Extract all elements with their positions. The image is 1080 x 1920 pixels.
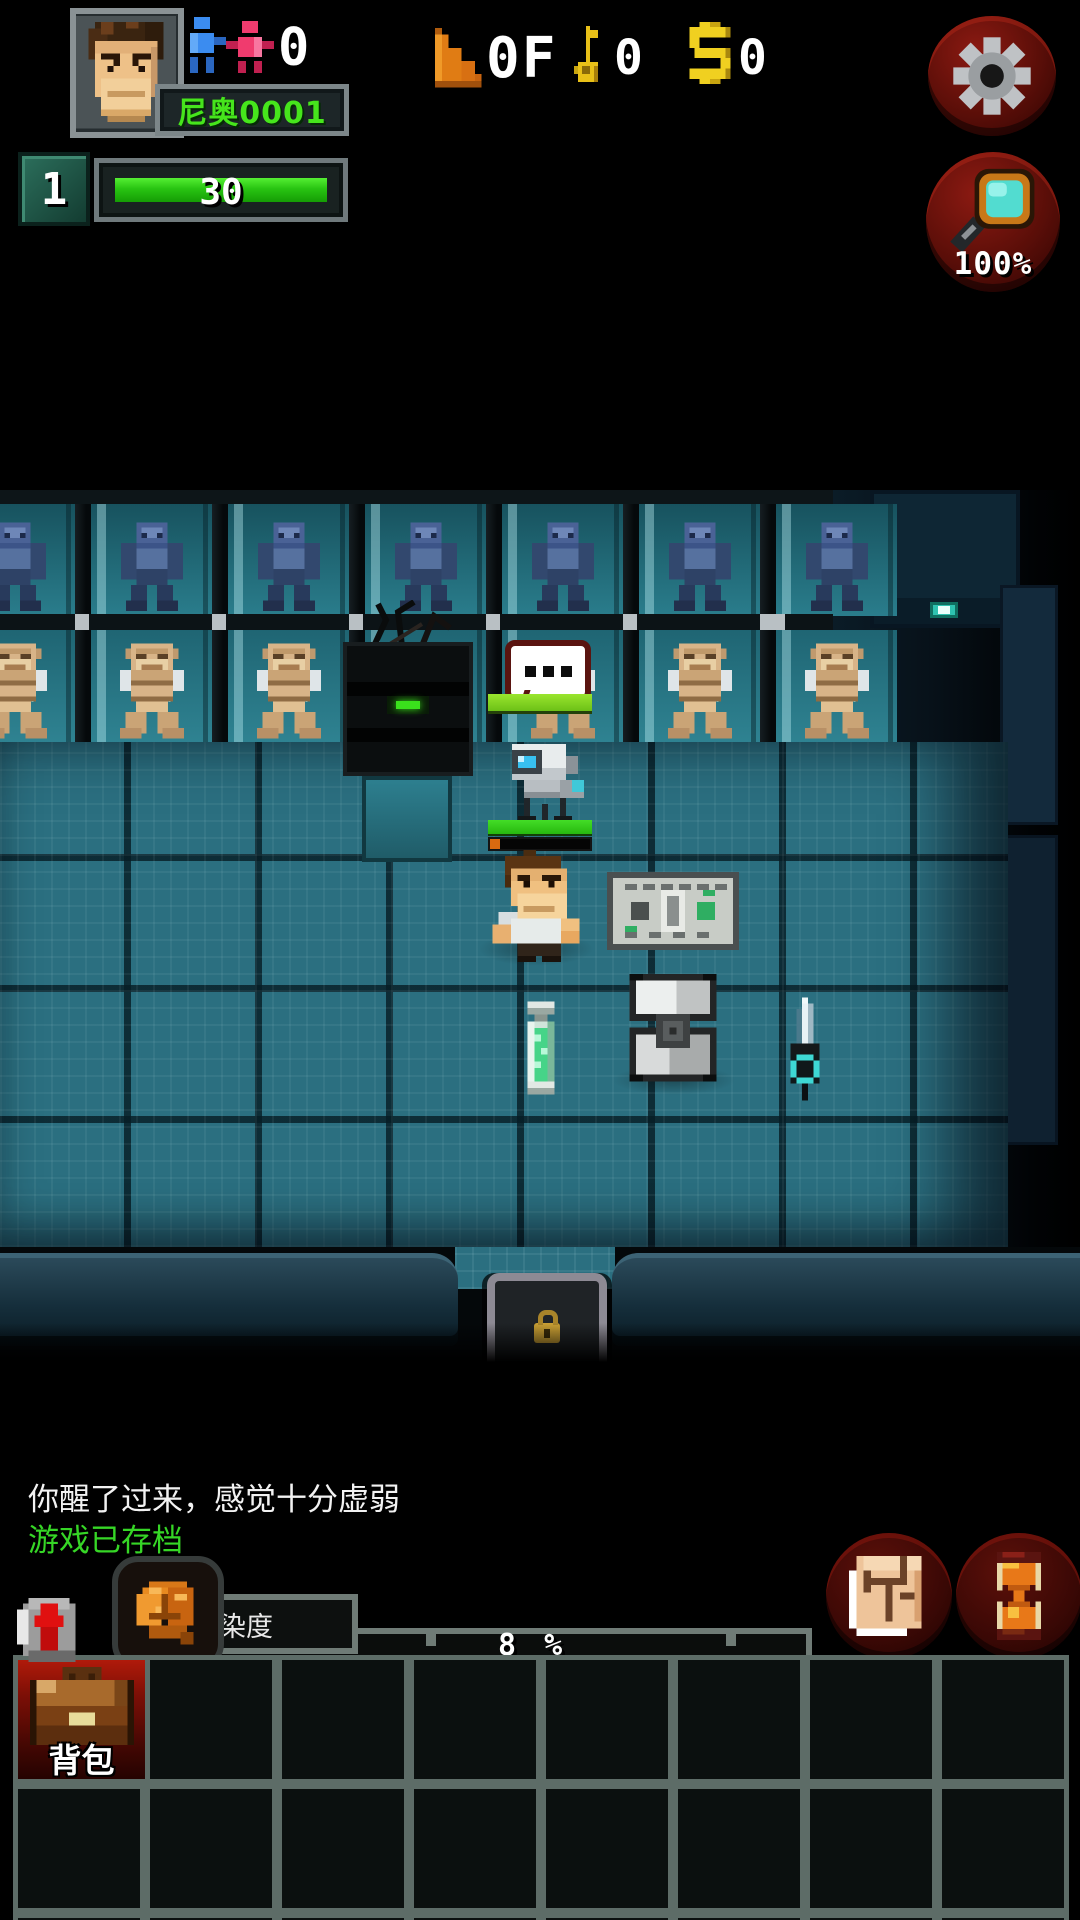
money-icon xyxy=(684,22,736,84)
vat-pillar xyxy=(75,504,91,616)
hp-bar: 30 xyxy=(115,178,327,202)
blue-specimen-icon xyxy=(245,512,333,616)
cloning-vat xyxy=(212,504,349,616)
machine-antenna-icon xyxy=(362,600,454,646)
player-character[interactable] xyxy=(486,850,586,962)
level-value: 1 xyxy=(41,164,68,215)
cloning-vat xyxy=(0,630,75,744)
backpack-button[interactable]: 背包 xyxy=(18,1660,145,1779)
upgrade-arrow-icon xyxy=(16,1592,82,1662)
person-blue-icon xyxy=(190,17,226,73)
inventory-slot[interactable] xyxy=(145,1655,277,1784)
inventory-slot[interactable] xyxy=(277,1913,409,1920)
machine-column xyxy=(362,776,452,862)
vat-pillar xyxy=(486,504,502,616)
attack-button[interactable] xyxy=(826,1533,952,1659)
machine-cabinet[interactable] xyxy=(343,642,473,776)
inventory-slot[interactable] xyxy=(409,1784,541,1913)
blue-specimen-icon xyxy=(656,512,744,616)
money-count: 0 xyxy=(738,30,767,86)
settings-button[interactable] xyxy=(928,16,1056,136)
cloning-vat xyxy=(760,630,897,744)
machine-led-icon xyxy=(387,696,429,714)
vat-pillar xyxy=(760,630,776,744)
cloning-vat xyxy=(212,630,349,744)
game-screen: 0 尼奥0001 1 30 0F 0 xyxy=(0,0,1080,1920)
tan-specimen-icon xyxy=(0,638,61,744)
dollar-bill-item[interactable] xyxy=(607,872,739,950)
inventory-slot[interactable] xyxy=(13,1784,145,1913)
key-count: 0 xyxy=(614,30,643,86)
game-scene[interactable] xyxy=(0,490,1080,1368)
backpack-icon xyxy=(30,1666,134,1752)
hourglass-icon xyxy=(986,1546,1052,1646)
inventory-slot[interactable] xyxy=(145,1784,277,1913)
cloning-vat xyxy=(75,504,212,616)
level-box: 1 xyxy=(18,152,90,226)
bottom-wall xyxy=(0,1247,1080,1368)
wait-button[interactable] xyxy=(956,1533,1080,1659)
inventory-slot[interactable] xyxy=(277,1784,409,1913)
player-name-plate: 尼奥0001 xyxy=(155,84,349,136)
cloning-vat xyxy=(75,630,212,744)
vat-pillar xyxy=(623,504,639,616)
cloning-vat xyxy=(623,630,760,744)
wall-panel xyxy=(1000,835,1058,1145)
infection-tick xyxy=(426,1632,436,1646)
tan-specimen-icon xyxy=(791,638,883,744)
floor-stairs-icon xyxy=(428,28,482,94)
inventory-slot[interactable] xyxy=(805,1913,937,1920)
wall-fade xyxy=(0,1323,1080,1368)
person-pink-icon xyxy=(226,21,274,73)
player-name: 尼奥0001 xyxy=(177,88,327,132)
safe-item[interactable] xyxy=(616,974,730,1088)
vat-pillar xyxy=(75,630,91,744)
vat-pillar xyxy=(486,630,502,744)
inventory-slot[interactable] xyxy=(673,1655,805,1784)
wall-light-icon xyxy=(930,602,958,618)
inventory-slot[interactable] xyxy=(541,1913,673,1920)
inventory-slot[interactable] xyxy=(145,1913,277,1920)
inventory-slot[interactable] xyxy=(937,1913,1069,1920)
blue-specimen-icon xyxy=(0,512,59,616)
cloning-vat xyxy=(486,504,623,616)
vat-pillar xyxy=(623,630,639,744)
blue-specimen-icon xyxy=(519,512,607,616)
robot-energy-bar xyxy=(488,837,592,851)
zoom-percent: 100% xyxy=(926,246,1060,282)
floor-counter: 0F xyxy=(486,26,557,91)
fist-icon xyxy=(842,1549,936,1643)
population-icons xyxy=(186,16,276,78)
inventory-slot[interactable] xyxy=(673,1784,805,1913)
zoom-button[interactable]: 100% xyxy=(926,152,1060,292)
cloning-vat xyxy=(0,504,75,616)
brain-icon xyxy=(130,1575,206,1651)
tan-specimen-icon xyxy=(654,638,746,744)
inventory-slot[interactable] xyxy=(673,1913,805,1920)
vat-pillar xyxy=(760,504,776,616)
vat-pillar xyxy=(212,504,228,616)
tan-specimen-icon xyxy=(243,638,335,744)
tan-specimen-icon xyxy=(106,638,198,744)
inventory-slot[interactable] xyxy=(541,1784,673,1913)
robot-npc[interactable] xyxy=(500,744,590,822)
wall-panel xyxy=(1000,585,1058,825)
key-icon xyxy=(570,26,606,86)
vat-row-top xyxy=(0,504,918,616)
log-line-2: 游戏已存档 xyxy=(28,1515,183,1560)
infection-brain-frame[interactable] xyxy=(112,1556,224,1670)
robot-health-bar xyxy=(488,820,592,834)
inventory-grid xyxy=(13,1655,1069,1920)
inventory-slot[interactable] xyxy=(937,1784,1069,1913)
inventory-slot[interactable] xyxy=(937,1655,1069,1784)
vat-pillar xyxy=(212,630,228,744)
vial-item[interactable] xyxy=(521,1001,561,1095)
cloning-vat xyxy=(760,504,897,616)
population-count: 0 xyxy=(278,18,309,78)
inventory-slot[interactable] xyxy=(277,1655,409,1784)
log-line-1: 你醒了过来，感觉十分虚弱 xyxy=(28,1474,400,1519)
inventory-slot[interactable] xyxy=(805,1655,937,1784)
inventory-slot[interactable] xyxy=(805,1784,937,1913)
inventory-slot[interactable] xyxy=(541,1655,673,1784)
npc-health-bar xyxy=(488,694,592,711)
inventory-slot[interactable] xyxy=(409,1913,541,1920)
speech-bubble[interactable] xyxy=(505,640,591,702)
hp-value: 30 xyxy=(115,172,327,213)
magnifier-icon xyxy=(947,162,1039,254)
inventory-slot[interactable] xyxy=(13,1913,145,1920)
infection-tick xyxy=(726,1632,736,1646)
inventory-slot[interactable] xyxy=(409,1655,541,1784)
backpack-label: 背包 xyxy=(49,1744,115,1777)
dagger-item[interactable] xyxy=(785,997,825,1101)
gear-icon xyxy=(949,33,1035,119)
cloning-vat xyxy=(623,504,760,616)
blue-specimen-icon xyxy=(793,512,881,616)
hp-panel: 30 xyxy=(94,158,348,222)
blue-specimen-icon xyxy=(108,512,196,616)
